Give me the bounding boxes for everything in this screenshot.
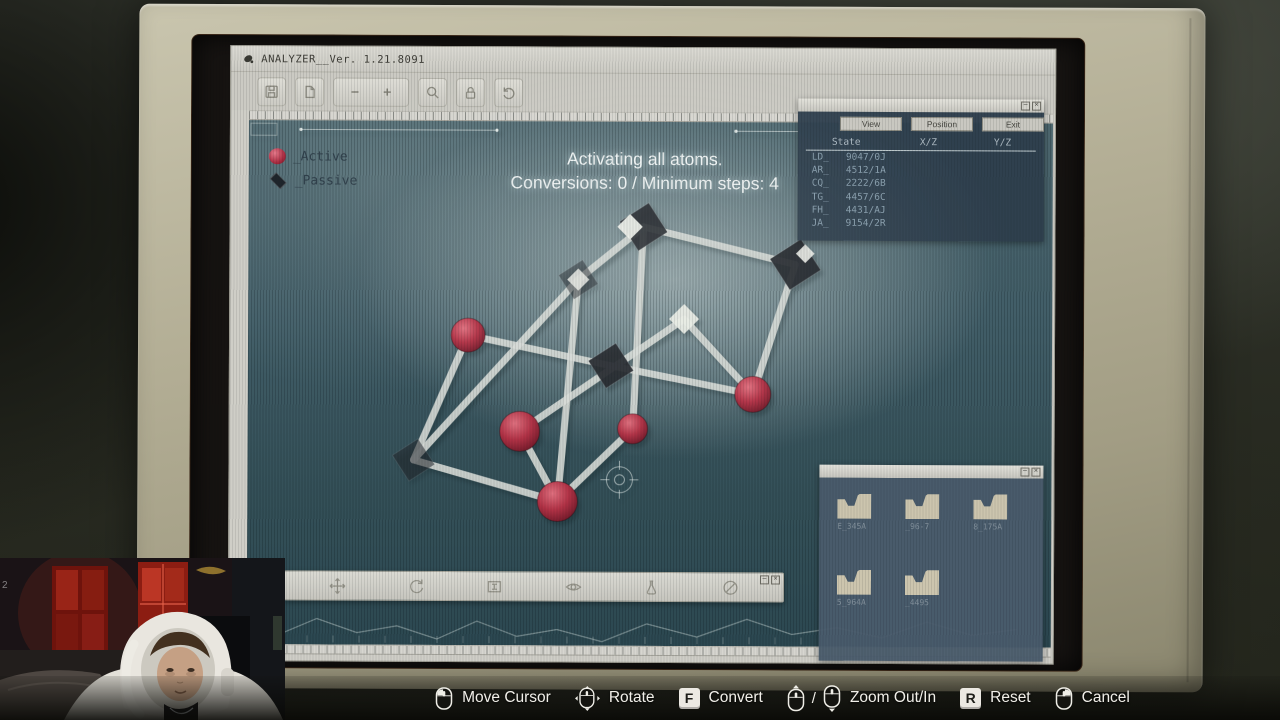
column-header-state: State (832, 137, 920, 148)
column-header-x-z: X/Z (920, 137, 994, 148)
atom-sphere-A[interactable] (451, 318, 485, 352)
sample-icon[interactable] (643, 578, 660, 595)
folder-panel-titlebar: – × (819, 465, 1043, 479)
panel-tab-exit[interactable]: Exit (982, 117, 1044, 131)
viewer-toolbar-window-buttons: – × (760, 575, 780, 584)
zoom-out-glyph[interactable]: − (351, 84, 359, 100)
row-id: JA_ (812, 217, 846, 230)
page-icon (302, 84, 317, 99)
frame-icon[interactable] (486, 578, 503, 595)
scene: ANALYZER__Ver. 1.21.8091 −+ _Active _Pas… (0, 0, 1280, 720)
disable-icon[interactable] (722, 579, 739, 596)
table-row[interactable]: TG_4457/6C (798, 190, 1044, 204)
mouse-left-icon (435, 686, 453, 711)
panel-tab-view[interactable]: View (840, 117, 902, 131)
folder-icon (837, 494, 871, 519)
toolbar-zoom-buttons-button[interactable]: −+ (333, 77, 409, 106)
row-id: LD_ (812, 151, 846, 164)
folder-label: 5_964A (837, 598, 889, 607)
row-value: 4457/6C (846, 190, 886, 203)
row-value: 4512/1A (846, 164, 886, 177)
atom-sphere-D[interactable] (618, 414, 648, 444)
bond-A-F (414, 335, 469, 460)
legend-active-row: _Active (269, 144, 358, 168)
state-table-header: StateX/ZY/Z (798, 131, 1044, 151)
reset-view-icon (501, 85, 516, 100)
titlebar: ANALYZER__Ver. 1.21.8091 (231, 46, 1055, 76)
hint-label: Convert (709, 689, 763, 707)
row-value: 9047/0J (846, 151, 886, 164)
folder-icon (905, 570, 939, 595)
folder-label: E_345A (837, 522, 889, 531)
mouse-right-icon (1055, 686, 1073, 711)
measure-line (251, 123, 799, 137)
atom-sphere-C[interactable] (537, 481, 577, 521)
folder-label: _4495 (905, 598, 957, 607)
folder-panel: – × E_345A_96-78_175A5_964A_4495 (819, 465, 1044, 662)
search-icon (425, 84, 440, 99)
row-value: 9154/2R (846, 217, 886, 230)
toolbar-save-button[interactable] (257, 77, 286, 106)
state-panel-tabs: ViewPositionExit (798, 112, 1044, 132)
hint-label: Rotate (609, 689, 655, 707)
row-id: AR_ (812, 164, 846, 177)
folder-label: 8_175A (973, 522, 1025, 531)
row-id: FH_ (812, 203, 846, 216)
row-value: 4431/AJ (846, 204, 886, 217)
close-button[interactable]: × (771, 575, 780, 584)
passive-atom-swatch (270, 172, 287, 189)
mouse-wheel-up-icon (787, 685, 805, 712)
folder-5-964a[interactable]: 5_964A (837, 570, 889, 607)
panel-tab-position[interactable]: Position (911, 117, 973, 131)
state-panel: – × ViewPositionExit StateX/ZY/Z LD_9047… (797, 99, 1044, 242)
atom-sphere-E[interactable] (735, 376, 771, 412)
folder-grid: E_345A_96-78_175A5_964A_4495 (819, 478, 1044, 662)
folder-8-175a[interactable]: 8_175A (973, 494, 1025, 531)
row-id: CQ_ (812, 177, 846, 190)
close-button[interactable]: × (1032, 102, 1041, 111)
viewer-toolbar: – × (284, 570, 784, 602)
state-table-rows: LD_9047/0JAR_4512/1ACQ_2222/6BTG_4457/6C… (798, 151, 1044, 231)
key-r-icon: R (960, 688, 981, 709)
lock-icon (463, 85, 478, 100)
hint-reset: RReset (960, 688, 1031, 709)
row-id: TG_ (812, 190, 846, 203)
folder-4495[interactable]: _4495 (905, 570, 957, 607)
separator: / (812, 690, 816, 707)
toolbar-lock-button[interactable] (456, 78, 485, 107)
close-button[interactable]: × (1031, 468, 1040, 477)
folder-icon (837, 570, 871, 595)
bond-D-H (633, 227, 644, 429)
hint-label: Zoom Out/In (850, 689, 936, 707)
control-hints: Move CursorRotateFConvert/Zoom Out/InRRe… (285, 676, 1280, 720)
table-row[interactable]: JA_9154/2R (798, 217, 1044, 231)
state-panel-body: ViewPositionExit StateX/ZY/Z LD_9047/0JA… (797, 112, 1044, 242)
minimize-button[interactable]: – (1020, 468, 1029, 477)
mouse-move-icon (575, 686, 600, 711)
hint-cancel: Cancel (1055, 686, 1130, 711)
atom-sphere-B[interactable] (500, 411, 540, 451)
save-icon (264, 84, 279, 99)
folder-label: _96-7 (905, 522, 957, 531)
app-icon (243, 53, 254, 64)
table-row[interactable]: AR_4512/1A (798, 164, 1044, 178)
table-row[interactable]: FH_4431/AJ (798, 203, 1044, 217)
atom-cube-I[interactable] (764, 234, 826, 296)
move-icon[interactable] (329, 577, 346, 594)
key-f-icon: F (679, 688, 700, 709)
hint-label: Move Cursor (462, 689, 551, 707)
hint-move-cursor: Move Cursor (435, 686, 551, 711)
bond-J-F (414, 279, 579, 461)
window-title: ANALYZER__Ver. 1.21.8091 (261, 53, 425, 66)
folder-96-7[interactable]: _96-7 (905, 494, 957, 531)
toolbar-reset-view-button[interactable] (494, 78, 523, 107)
legend-active-label: _Active (293, 149, 348, 164)
toolbar-page-button[interactable] (295, 77, 324, 106)
rotate-icon[interactable] (408, 577, 425, 594)
hint-convert: FConvert (679, 688, 763, 709)
legend-passive-row: _Passive (269, 168, 358, 192)
hint-zoom-out-in: /Zoom Out/In (787, 685, 936, 712)
folder-e-345a[interactable]: E_345A (837, 494, 889, 531)
crt-monitor: ANALYZER__Ver. 1.21.8091 −+ _Active _Pas… (137, 4, 1206, 693)
table-row[interactable]: CQ_2222/6B (798, 177, 1044, 191)
viewer-toolbar-icons (285, 571, 783, 601)
hint-rotate: Rotate (575, 686, 655, 711)
hint-label: Reset (990, 689, 1031, 707)
zoom-in-glyph[interactable]: + (383, 84, 391, 100)
legend-passive-label: _Passive (295, 173, 358, 188)
control-hints-bar: Move CursorRotateFConvert/Zoom Out/InRRe… (0, 676, 1280, 720)
active-atom-swatch (269, 148, 286, 164)
analyzer-window: ANALYZER__Ver. 1.21.8091 −+ _Active _Pas… (228, 45, 1057, 665)
folder-icon (973, 494, 1007, 519)
hint-label: Cancel (1082, 689, 1130, 707)
minimize-button[interactable]: – (1021, 102, 1030, 111)
minimize-button[interactable]: – (760, 575, 769, 584)
monitor-screen: ANALYZER__Ver. 1.21.8091 −+ _Active _Pas… (189, 34, 1086, 672)
folder-icon (905, 494, 939, 519)
webcam-corner-text: 2 (2, 580, 8, 591)
legend: _Active _Passive (269, 144, 358, 192)
table-row[interactable]: LD_9047/0J (798, 151, 1044, 165)
toolbar-search-button[interactable] (418, 77, 447, 106)
mouse-wheel-down-icon (823, 685, 841, 712)
column-header-y-z: Y/Z (994, 137, 1044, 148)
state-panel-titlebar: – × (798, 99, 1044, 113)
cursor-crosshair (600, 461, 638, 499)
row-value: 2222/6B (846, 177, 886, 190)
eye-icon[interactable] (565, 578, 582, 595)
